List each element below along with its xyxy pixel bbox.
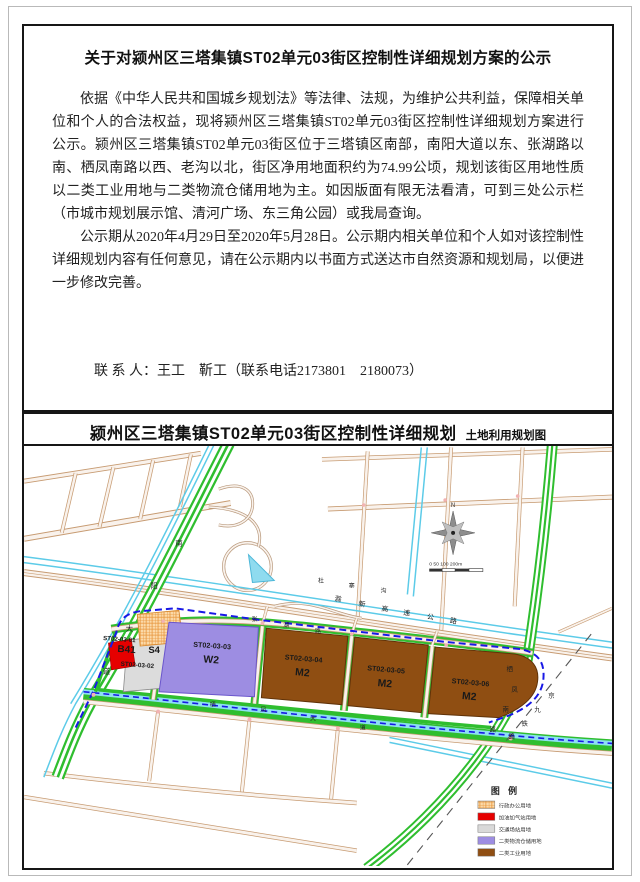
legend-label-logistics: 二类物流仓储用地	[499, 837, 543, 845]
expressway-char-2: 新	[358, 599, 366, 609]
expressway-char-6: 路	[449, 616, 457, 626]
qifeng-avenue-char-3: 大	[310, 715, 316, 723]
expressway-char-1: 滁	[334, 594, 342, 604]
zone-industrial-M2-04	[261, 628, 347, 704]
qifeng-south-char-1: 栖	[506, 664, 513, 673]
contact-person-line: 联 系 人：王工 靳工（联系电话2173801 2180073）	[94, 360, 584, 384]
railway-char-4: 路	[508, 731, 515, 740]
legend-label-gas-station: 加油加气站用地	[499, 813, 537, 821]
legend-title: 图 例	[491, 785, 520, 796]
legend-label-transport-station: 交通场站用地	[499, 825, 532, 833]
map-legend: 图 例 行政办公用地 加油加气站用地 交通场站用地 二类物流仓储用地 二类工业用…	[478, 785, 542, 857]
legend-swatch-gas-station	[478, 813, 495, 820]
notice-paragraph-2: 公示期从2020年4月29日至2020年5月28日。公示期内相关单位和个人如对该…	[52, 226, 584, 295]
compass-north-label: N	[451, 503, 455, 509]
legend-label-admin-office: 行政办公用地	[499, 801, 532, 809]
qifeng-avenue-char-1: 栖	[210, 701, 216, 709]
qifeng-avenue-char-2: 凤	[260, 707, 266, 714]
notice-paragraph-1: 依据《中华人民共和国城乡规划法》等法律、法规，为维护公共利益，保障相关单位和个人…	[52, 88, 584, 226]
zone-industrial-M2-05	[348, 637, 428, 712]
zone-code-m2-04: M2	[295, 667, 311, 679]
scale-bar: 0 50 100 200m	[429, 562, 483, 572]
duzhaigou-char-2: 寨	[349, 581, 355, 589]
zone-code-b41: B41	[117, 644, 136, 656]
expressway-char-3: 高	[381, 604, 389, 614]
legend-swatch-logistics	[478, 837, 495, 844]
railway-char-3: 铁	[521, 719, 528, 728]
notice-box: 关于对颍州区三塔集镇ST02单元03街区控制性详细规划方案的公示 依据《中华人民…	[22, 24, 614, 412]
qifeng-south-char-4: 路	[490, 724, 497, 733]
map-title-bar: 颍州区三塔集镇ST02单元03街区控制性详细规划 土地利用规划图	[24, 414, 612, 446]
zone-code-m2-05: M2	[377, 678, 393, 690]
land-use-map: ST02-03-01 B41 S4 ST02-03-02 ST02-03-03 …	[24, 446, 612, 866]
qifeng-avenue-char-4: 道	[360, 724, 366, 732]
zhanghu-char-1: 张	[251, 615, 257, 623]
duzhaigou-char-1: 杜	[318, 577, 324, 585]
zhanghu-char-2: 湖	[283, 621, 289, 629]
zone-code-m2-06: M2	[462, 691, 478, 703]
zone-code-s4: S4	[148, 644, 160, 655]
legend-swatch-industrial	[478, 849, 495, 856]
map-subtitle: 土地利用规划图	[466, 427, 547, 443]
qifeng-south-char-3: 南	[502, 705, 509, 714]
nanyang-char-2: 阳	[150, 581, 157, 590]
legend-swatch-transport-station	[478, 825, 495, 832]
railway-char-1: 京	[548, 691, 555, 700]
scale-bar-text: 0 50 100 200m	[429, 562, 462, 568]
waterway-northeast	[407, 447, 427, 596]
zhanghu-char-3: 路	[315, 627, 321, 635]
railway-char-2: 九	[534, 705, 541, 714]
qifeng-south-char-2: 凤	[511, 686, 518, 694]
map-box: 颍州区三塔集镇ST02单元03街区控制性详细规划 土地利用规划图	[22, 412, 614, 870]
map-title: 颍州区三塔集镇ST02单元03街区控制性详细规划	[90, 420, 457, 444]
nanyang-char-4: 道	[103, 666, 111, 676]
zone-code-w2: W2	[203, 654, 220, 666]
expressway-char-4: 速	[403, 609, 411, 618]
compass-rose: N	[431, 503, 475, 555]
legend-swatch-admin-office	[478, 801, 495, 808]
expressway-char-5: 公	[427, 613, 435, 622]
legend-label-industrial: 二类工业用地	[499, 849, 532, 857]
duzhaigou-char-3: 沟	[381, 586, 387, 594]
notice-title: 关于对颍州区三塔集镇ST02单元03街区控制性详细规划方案的公示	[52, 46, 584, 68]
nanyang-char-3: 大	[126, 623, 134, 633]
nanyang-char-1: 南	[175, 538, 182, 548]
zone-label-st02-03-01: ST02-03-01	[103, 635, 136, 644]
public-notice-page: 关于对颍州区三塔集镇ST02单元03街区控制性详细规划方案的公示 依据《中华人民…	[0, 0, 640, 882]
